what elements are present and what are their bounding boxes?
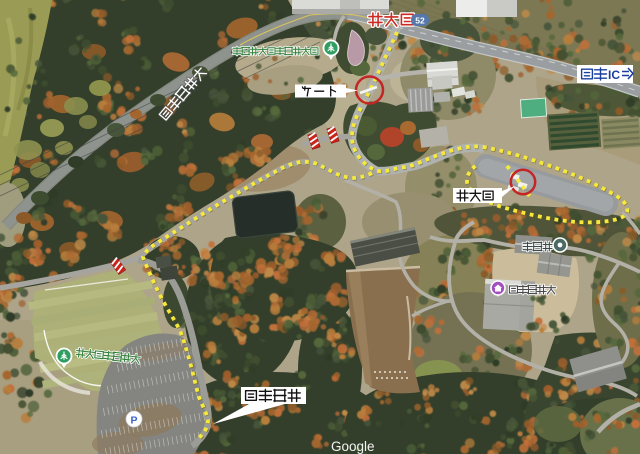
svg-text:P: P: [130, 415, 137, 427]
svg-text:Google: Google: [331, 439, 375, 454]
svg-text:IC: IC: [608, 68, 620, 82]
svg-text:52: 52: [415, 16, 425, 26]
